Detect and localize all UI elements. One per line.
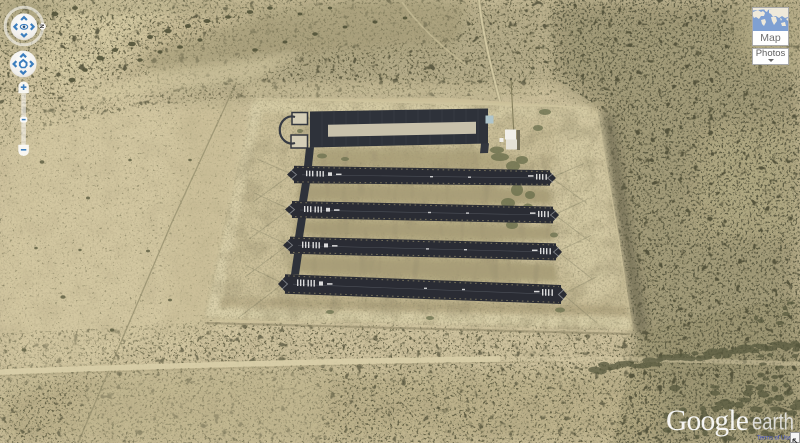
- svg-text:N: N: [38, 24, 44, 28]
